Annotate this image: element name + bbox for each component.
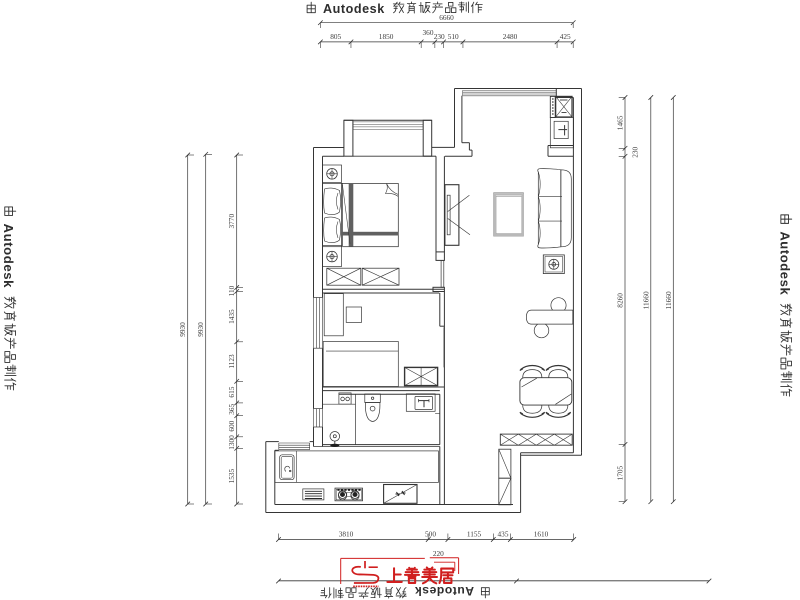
svg-text:220: 220: [433, 549, 444, 558]
svg-text:Autodesk: Autodesk: [323, 2, 385, 16]
svg-text:1535: 1535: [227, 468, 236, 483]
svg-text:360: 360: [423, 28, 434, 37]
svg-text:230: 230: [434, 32, 445, 41]
svg-text:510: 510: [448, 32, 459, 41]
svg-text:6660: 6660: [439, 13, 454, 22]
svg-text:2480: 2480: [503, 32, 518, 41]
svg-text:615: 615: [227, 386, 236, 397]
svg-text:425: 425: [560, 32, 571, 41]
svg-text:1610: 1610: [534, 530, 549, 539]
svg-text:500: 500: [425, 530, 436, 539]
svg-text:9930: 9930: [178, 322, 187, 337]
svg-text:1300: 1300: [227, 435, 236, 450]
svg-text:1123: 1123: [227, 354, 236, 369]
svg-text:1435: 1435: [227, 309, 236, 324]
svg-text:1850: 1850: [379, 32, 394, 41]
svg-text:110: 110: [227, 285, 236, 296]
svg-text:1465: 1465: [616, 115, 625, 130]
svg-text:8260: 8260: [616, 293, 625, 308]
svg-text:1705: 1705: [616, 465, 625, 480]
svg-text:Autodesk: Autodesk: [1, 224, 16, 289]
svg-text:3770: 3770: [227, 214, 236, 229]
svg-text:365: 365: [227, 403, 236, 414]
svg-text:3810: 3810: [339, 530, 354, 539]
svg-text:11660: 11660: [664, 291, 673, 309]
svg-text:600: 600: [227, 420, 236, 431]
svg-text:805: 805: [330, 32, 341, 41]
svg-text:230: 230: [631, 146, 640, 157]
svg-text:435: 435: [498, 530, 509, 539]
svg-text:Autodesk: Autodesk: [414, 584, 473, 598]
svg-text:9930: 9930: [196, 322, 205, 337]
svg-text:11660: 11660: [641, 291, 650, 309]
svg-text:1155: 1155: [467, 530, 482, 539]
svg-text:Autodesk: Autodesk: [777, 231, 792, 295]
